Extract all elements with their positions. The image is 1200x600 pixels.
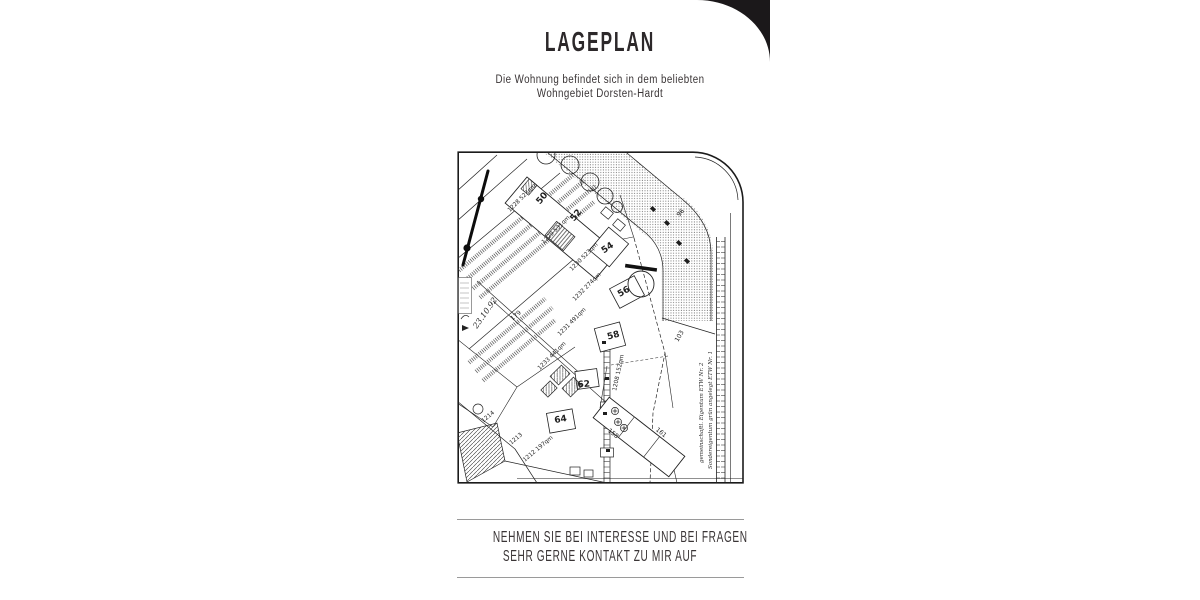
- flyer-page: LAGEPLAN Die Wohnung befindet sich in de…: [430, 0, 770, 600]
- footer-line-1: NEHMEN SIE BEI INTERESSE UND BEI FRAGEN: [493, 528, 707, 547]
- site-plan-image: 50 52 54 56 58 62 64 1228 523qm 1229 531…: [457, 151, 744, 484]
- footer-line-2: SEHR GERNE KONTAKT ZU MIR AUF: [493, 547, 707, 566]
- house-number-label: 62: [577, 379, 590, 390]
- handwritten-margin-note: Sondereigentum grün angelegt ETW Nr. 1: [708, 351, 714, 469]
- corner-shape: [697, 0, 770, 62]
- subtitle-line-1: Die Wohnung befindet sich in dem beliebt…: [456, 74, 745, 88]
- handwritten-margin-note: gemeinschaftl. Eigentum ETW Nr. 2: [699, 362, 705, 463]
- footer-divider-bottom: [457, 577, 744, 578]
- subtitle-line-2: Wohngebiet Dorsten-Hardt: [456, 88, 745, 102]
- corner-decoration: [697, 0, 770, 62]
- footer-divider-top: [457, 519, 744, 520]
- page-title: LAGEPLAN: [495, 26, 706, 58]
- footer-note: NEHMEN SIE BEI INTERESSE UND BEI FRAGEN …: [493, 528, 707, 566]
- site-plan-svg: 50 52 54 56 58 62 64 1228 523qm 1229 531…: [457, 151, 744, 484]
- page-subtitle: Die Wohnung befindet sich in dem beliebt…: [456, 74, 745, 101]
